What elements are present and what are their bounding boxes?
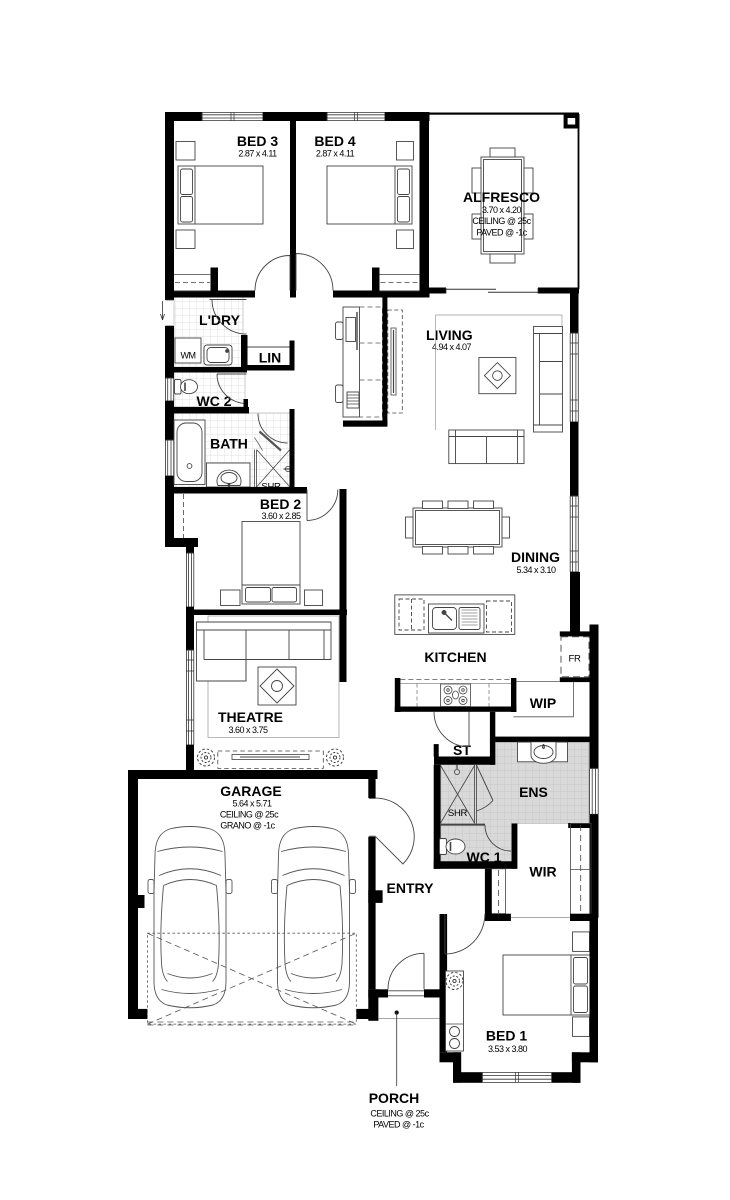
svg-text:3.53 x 3.80: 3.53 x 3.80: [488, 1044, 528, 1054]
svg-text:THEATRE: THEATRE: [218, 709, 283, 725]
svg-text:BATH: BATH: [210, 436, 248, 452]
svg-text:KITCHEN: KITCHEN: [424, 649, 486, 665]
svg-text:CEILING @ 25c: CEILING @ 25c: [220, 810, 279, 820]
svg-text:PAVED @ -1c: PAVED @ -1c: [476, 228, 527, 238]
svg-text:LIVING: LIVING: [426, 327, 473, 343]
svg-text:3.70 x 4.20: 3.70 x 4.20: [482, 205, 522, 215]
svg-text:2.87 x 4.11: 2.87 x 4.11: [238, 149, 277, 159]
svg-text:ENTRY: ENTRY: [387, 880, 435, 896]
svg-text:GRANO @ -1c: GRANO @ -1c: [220, 821, 275, 831]
svg-text:SHR: SHR: [448, 808, 468, 819]
svg-text:4.94 x 4.07: 4.94 x 4.07: [432, 342, 472, 352]
svg-text:LIN: LIN: [259, 350, 282, 366]
svg-text:CEILING @ 25c: CEILING @ 25c: [472, 216, 531, 226]
svg-text:BED 1: BED 1: [486, 1028, 527, 1044]
svg-text:PAVED @ -1c: PAVED @ -1c: [373, 1120, 424, 1130]
svg-text:2.87 x 4.11: 2.87 x 4.11: [316, 149, 355, 159]
svg-text:BED 4: BED 4: [314, 133, 355, 149]
svg-text:3.60 x 3.75: 3.60 x 3.75: [228, 725, 268, 735]
svg-text:FR: FR: [568, 654, 581, 665]
svg-text:5.34 x 3.10: 5.34 x 3.10: [516, 565, 556, 575]
svg-text:GARAGE: GARAGE: [220, 783, 281, 799]
svg-text:3.60 x 2.85: 3.60 x 2.85: [261, 511, 301, 521]
svg-text:WIR: WIR: [529, 864, 556, 880]
svg-text:ALFRESCO: ALFRESCO: [463, 189, 540, 205]
svg-text:WIP: WIP: [530, 695, 556, 711]
svg-text:BED 3: BED 3: [237, 133, 278, 149]
svg-text:BED 2: BED 2: [260, 496, 301, 512]
svg-text:5.64 x 5.71: 5.64 x 5.71: [232, 799, 272, 809]
svg-text:WM: WM: [181, 351, 196, 361]
svg-text:DINING: DINING: [511, 549, 560, 565]
svg-text:ENS: ENS: [519, 784, 548, 800]
svg-text:CEILING @ 25c: CEILING @ 25c: [370, 1109, 429, 1119]
svg-text:L'DRY: L'DRY: [199, 312, 241, 328]
svg-text:PORCH: PORCH: [369, 1090, 420, 1106]
